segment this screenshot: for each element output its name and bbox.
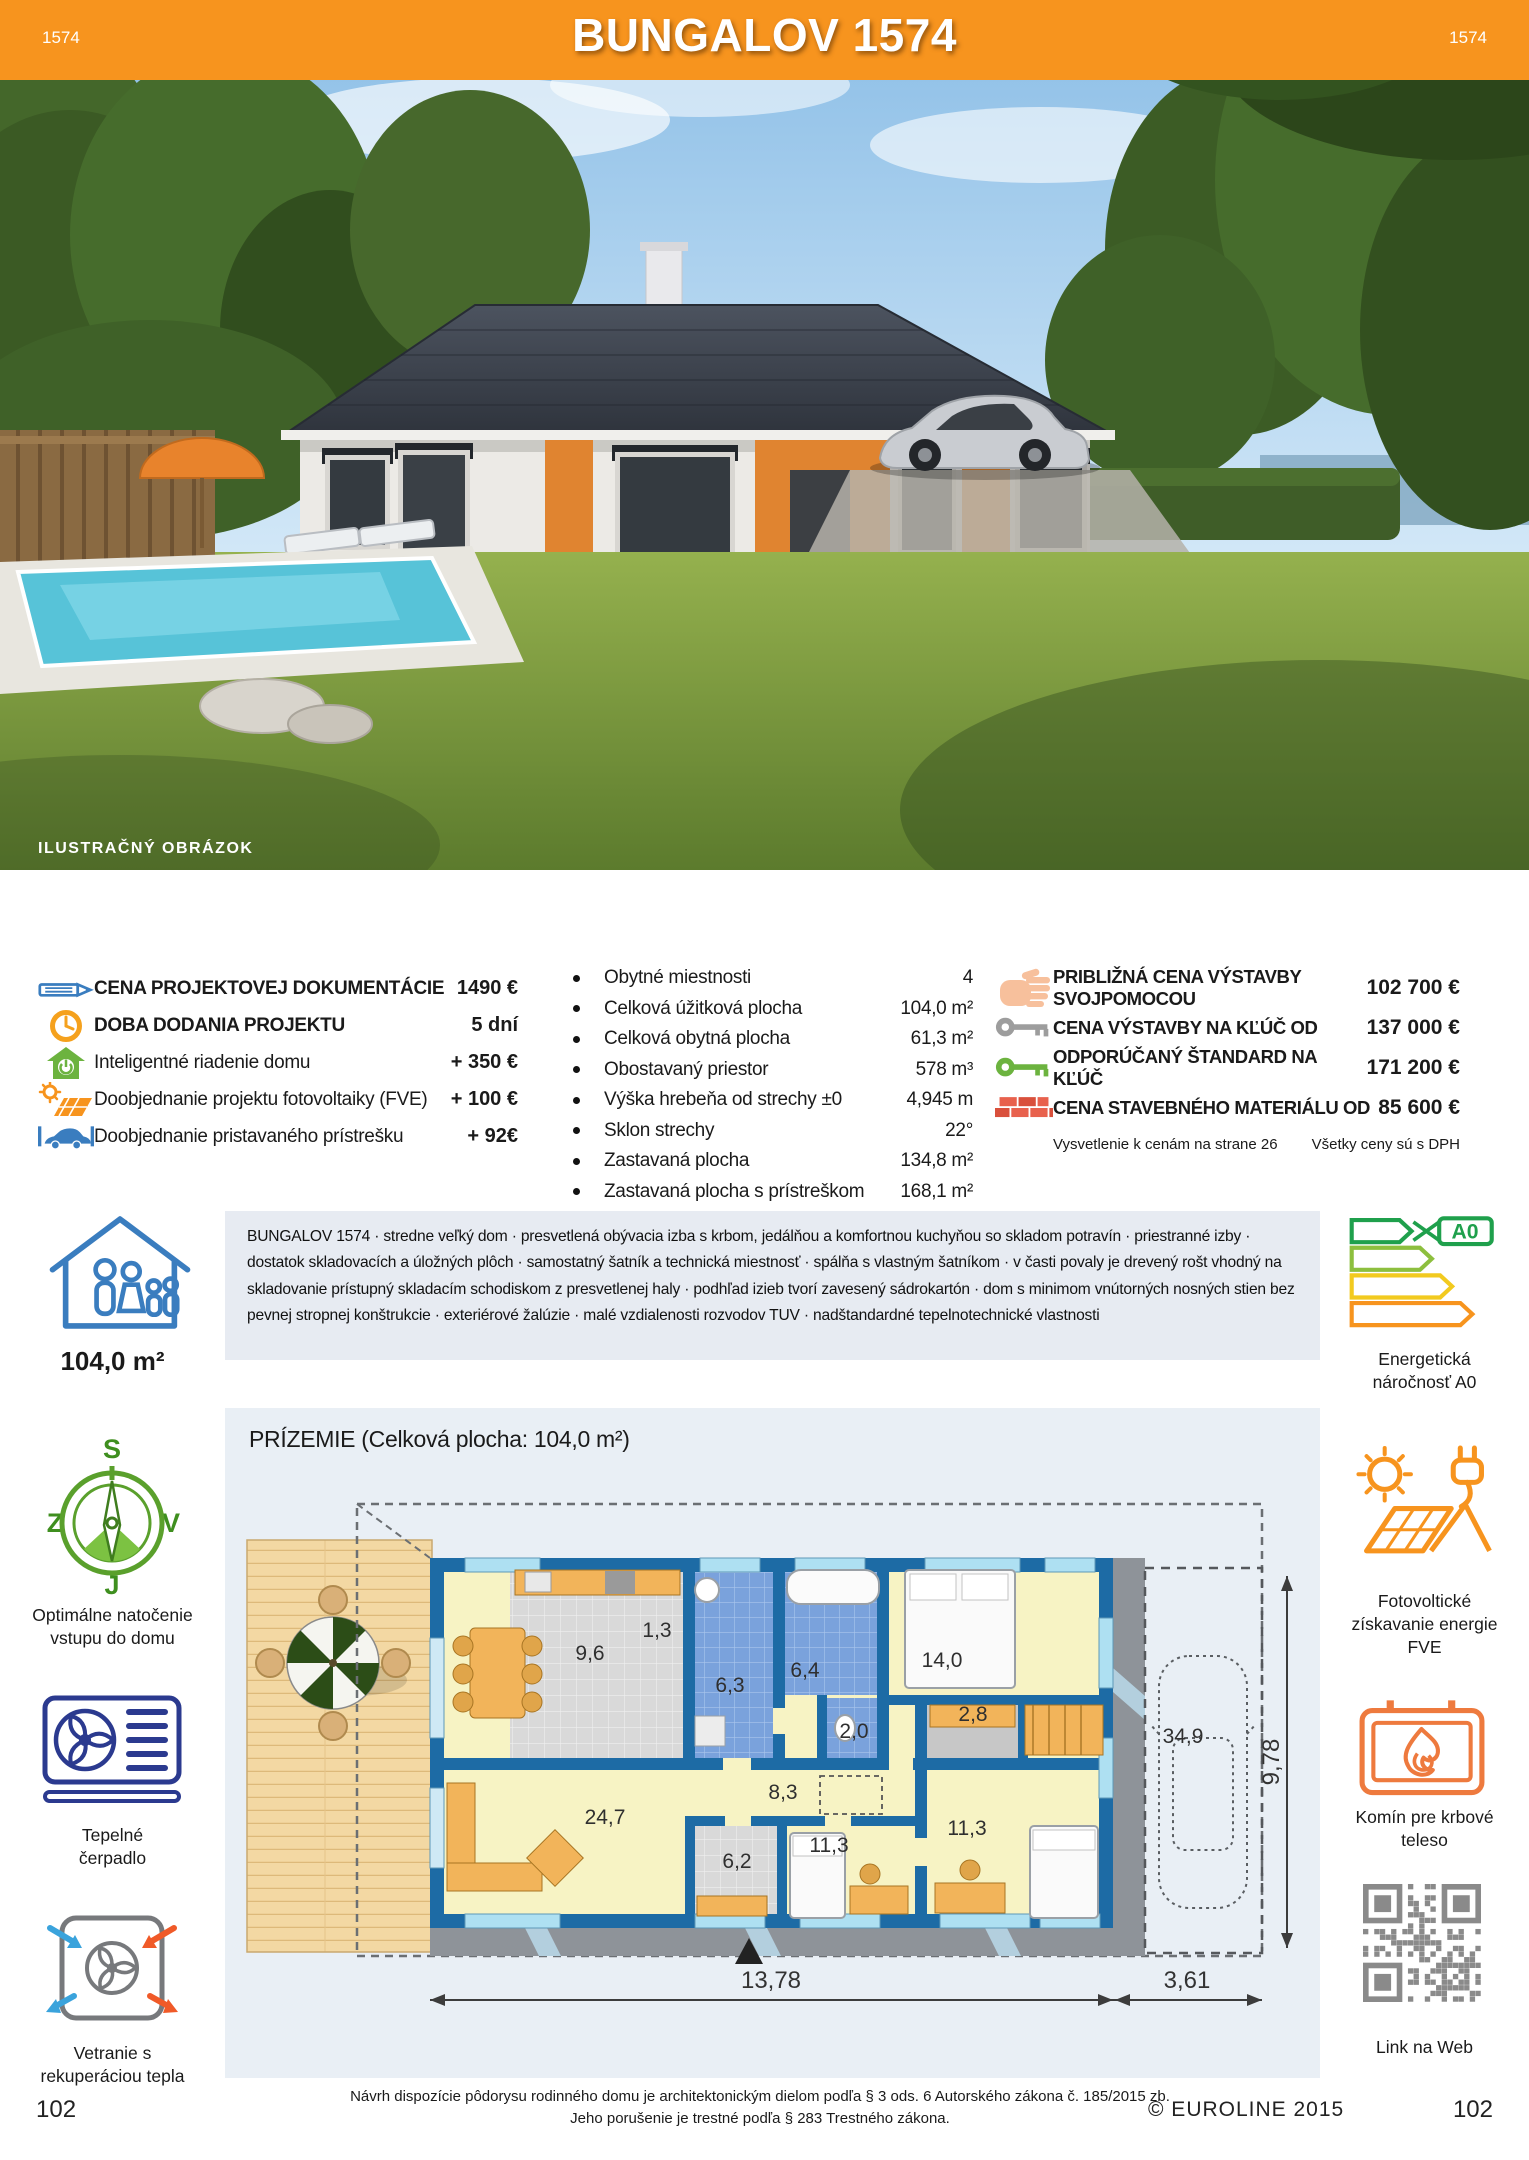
- floorplan-drawing: 9,6 1,3 6,3 6,4 2,0 14,0 2,8 8,3 24,7 6,…: [225, 1408, 1320, 2078]
- price-row-turnkey: CENA VÝSTAVBY NA KĽÚČ OD 137 000 €: [995, 1008, 1460, 1048]
- svg-text:34,9: 34,9: [1163, 1725, 1204, 1748]
- svg-text:24,7: 24,7: [585, 1806, 626, 1829]
- key-green-icon: [995, 1053, 1053, 1083]
- spec-value: 4,945 m: [906, 1089, 973, 1111]
- price-value: 171 200 €: [1367, 1056, 1460, 1080]
- price-row-materials: CENA STAVEBNÉHO MATERIÁLU OD 85 600 €: [995, 1088, 1460, 1128]
- hero-photo: ILUSTRAČNÝ OBRÁZOK EUROLINE: [0, 0, 1529, 870]
- key-gray-icon: [995, 1013, 1053, 1043]
- price-label: CENA VÝSTAVBY NA KĽÚČ OD: [1053, 1017, 1367, 1039]
- price-row-selfbuild: PRIBLIŽNÁ CENA VÝSTAVBY SVOJPOMOCOU 102 …: [995, 968, 1460, 1008]
- smart-home-icon: [38, 1046, 94, 1080]
- title-banner: 1574 BUNGALOV 1574 1574: [0, 0, 1529, 80]
- energy-caption: Energetická náročnosť A0: [1320, 1348, 1529, 1394]
- note-vat: Všetky ceny sú s DPH: [1312, 1136, 1460, 1153]
- price-row-fve: Doobjednanie projektu fotovoltaiky (FVE)…: [38, 1081, 518, 1118]
- spec-label: Výška hrebeňa od strechy ±0: [604, 1089, 906, 1111]
- bricks-icon: [995, 1094, 1053, 1122]
- photo-caption: ILUSTRAČNÝ OBRÁZOK: [38, 838, 253, 857]
- svg-text:8,3: 8,3: [768, 1781, 797, 1804]
- price-label: CENA STAVEBNÉHO MATERIÁLU OD: [1053, 1097, 1378, 1119]
- spec-row: Obytné miestnosti4: [563, 963, 973, 994]
- price-label: DOBA DODANIA PROJEKTU: [94, 1015, 471, 1037]
- price-label: Inteligentné riadenie domu: [94, 1052, 451, 1074]
- bullet-icon: [573, 1005, 580, 1012]
- energy-label-icon: A0: [1348, 1213, 1500, 1335]
- solar-order-icon: [38, 1082, 94, 1118]
- spec-label: Obostavaný priestor: [604, 1059, 916, 1081]
- photovoltaic-icon: [1352, 1440, 1494, 1566]
- carport-order-icon: [38, 1117, 94, 1157]
- catalog-page: ILUSTRAČNÝ OBRÁZOK EUROLINE 1574 BUNGALO…: [0, 0, 1529, 2160]
- price-value: 102 700 €: [1367, 976, 1460, 1000]
- house-description: BUNGALOV 1574 · stredne veľký dom · pres…: [225, 1211, 1320, 1360]
- house-family-icon: [45, 1210, 195, 1335]
- spec-value: 61,3 m²: [911, 1028, 973, 1050]
- bullet-icon: [573, 1066, 580, 1073]
- price-value: + 350 €: [451, 1051, 518, 1074]
- floorplan-panel: PRÍZEMIE (Celková plocha: 104,0 m²): [225, 1408, 1320, 2078]
- spec-value: 22°: [945, 1120, 973, 1142]
- energy-class-text: A0: [1451, 1221, 1478, 1244]
- footer-line-1: Návrh dispozície pôdorysu rodinného domu…: [260, 2086, 1260, 2108]
- price-row-carport: Doobjednanie pristavaného prístrešku + 9…: [38, 1118, 518, 1155]
- specs-column: Obytné miestnosti4 Celková úžitková ploc…: [563, 963, 973, 1207]
- usable-area-label: 104,0 m²: [0, 1346, 225, 1377]
- clock-icon: [38, 1008, 94, 1044]
- spec-row: Zastavaná plocha s prístreškom168,1 m²: [563, 1177, 973, 1208]
- footer-line-2: Jeho porušenie je trestné podľa § 283 Tr…: [260, 2108, 1260, 2130]
- chimney-cap: [640, 242, 688, 251]
- price-notes: Vysvetlenie k cenám na strane 26 Všetky …: [995, 1136, 1460, 1153]
- price-value: 85 600 €: [1378, 1096, 1460, 1120]
- ventilation-icon: [46, 1908, 178, 2026]
- compass-caption: Optimálne natočenie vstupu do domu: [0, 1604, 225, 1650]
- pricing-left-column: CENA PROJEKTOVEJ DOKUMENTÁCIE 1490 € DOB…: [38, 970, 518, 1155]
- svg-text:13,78: 13,78: [741, 1967, 801, 1994]
- svg-text:14,0: 14,0: [922, 1649, 963, 1672]
- svg-text:9,6: 9,6: [575, 1642, 604, 1665]
- spec-label: Celková úžitková plocha: [604, 998, 900, 1020]
- svg-text:S: S: [103, 1436, 121, 1464]
- spec-row: Celková úžitková plocha104,0 m²: [563, 994, 973, 1025]
- svg-text:2,0: 2,0: [839, 1720, 868, 1743]
- spec-row: Sklon strechy22°: [563, 1116, 973, 1147]
- price-label: ODPORÚČANÝ ŠTANDARD NA KĽÚČ: [1053, 1046, 1367, 1090]
- ventilation-caption: Vetranie s rekuperáciou tepla: [0, 2042, 225, 2088]
- price-row-standard: ODPORÚČANÝ ŠTANDARD NA KĽÚČ 171 200 €: [995, 1048, 1460, 1088]
- spec-value: 168,1 m²: [900, 1181, 973, 1203]
- overhang-right: [1113, 1558, 1145, 1956]
- bullet-icon: [573, 1188, 580, 1195]
- fireplace-caption: Komín pre krbové teleso: [1320, 1806, 1529, 1852]
- heat-pump-caption: Tepelné čerpadlo: [0, 1824, 225, 1870]
- bullet-icon: [573, 1036, 580, 1043]
- spec-row: Zastavaná plocha134,8 m²: [563, 1146, 973, 1177]
- svg-text:6,3: 6,3: [715, 1674, 744, 1697]
- qr-caption: Link na Web: [1320, 2036, 1529, 2059]
- bullet-icon: [573, 1158, 580, 1165]
- price-row-documentation: CENA PROJEKTOVEJ DOKUMENTÁCIE 1490 €: [38, 970, 518, 1007]
- note-explanation: Vysvetlenie k cenám na strane 26: [1053, 1136, 1278, 1153]
- spec-label: Celková obytná plocha: [604, 1028, 911, 1050]
- spec-value: 578 m³: [916, 1059, 973, 1081]
- spec-label: Zastavaná plocha s prístreškom: [604, 1181, 900, 1203]
- copyright-notice: Návrh dispozície pôdorysu rodinného domu…: [260, 2086, 1260, 2130]
- page-number-left: 102: [36, 2096, 76, 2124]
- spec-value: 104,0 m²: [900, 998, 973, 1020]
- spec-label: Sklon strechy: [604, 1120, 945, 1142]
- page-title: BUNGALOV 1574: [0, 8, 1529, 62]
- price-row-smart-home: Inteligentné riadenie domu + 350 €: [38, 1044, 518, 1081]
- svg-text:1,3: 1,3: [642, 1619, 671, 1642]
- bullet-icon: [573, 1127, 580, 1134]
- svg-text:V: V: [162, 1508, 180, 1538]
- qr-code-icon[interactable]: [1363, 1884, 1481, 2002]
- spec-value: 134,8 m²: [900, 1150, 973, 1172]
- svg-text:2,8: 2,8: [958, 1703, 987, 1726]
- pricing-right-column: PRIBLIŽNÁ CENA VÝSTAVBY SVOJPOMOCOU 102 …: [995, 968, 1460, 1153]
- fireplace-icon: [1358, 1700, 1486, 1798]
- page-number-right: 102: [1453, 2096, 1493, 2124]
- spec-row: Výška hrebeňa od strechy ±04,945 m: [563, 1085, 973, 1116]
- spec-row: Obostavaný priestor578 m³: [563, 1055, 973, 1086]
- carport-outline: [1145, 1568, 1262, 1953]
- bullet-icon: [573, 1097, 580, 1104]
- svg-text:11,3: 11,3: [947, 1817, 986, 1840]
- compass-icon: S Z V J: [45, 1436, 180, 1596]
- price-value: + 92€: [467, 1125, 518, 1148]
- carport-car: [1150, 1656, 1256, 1908]
- svg-text:3,61: 3,61: [1164, 1967, 1211, 1994]
- spec-value: 4: [963, 967, 973, 989]
- price-label: Doobjednanie pristavaného prístrešku: [94, 1126, 467, 1148]
- pencil-icon: [38, 975, 94, 1003]
- banner-code-right: 1574: [1449, 28, 1487, 48]
- svg-text:11,3: 11,3: [809, 1834, 848, 1857]
- price-value: + 100 €: [451, 1088, 518, 1111]
- price-value: 5 dní: [471, 1014, 518, 1037]
- spec-label: Obytné miestnosti: [604, 967, 963, 989]
- price-label: Doobjednanie projektu fotovoltaiky (FVE): [94, 1089, 451, 1111]
- svg-text:6,4: 6,4: [790, 1659, 820, 1682]
- price-value: 1490 €: [457, 977, 518, 1000]
- photovoltaic-caption: Fotovoltické získavanie energie FVE: [1320, 1590, 1529, 1659]
- svg-text:6,2: 6,2: [722, 1850, 751, 1873]
- price-row-delivery: DOBA DODANIA PROJEKTU 5 dní: [38, 1007, 518, 1044]
- svg-text:9,78: 9,78: [1258, 1739, 1285, 1786]
- heat-pump-icon: [37, 1692, 187, 1804]
- spec-label: Zastavaná plocha: [604, 1150, 900, 1172]
- price-value: 137 000 €: [1367, 1016, 1460, 1040]
- hand-icon: [995, 964, 1053, 1012]
- bullet-icon: [573, 975, 580, 982]
- floorplan-title: PRÍZEMIE (Celková plocha: 104,0 m²): [249, 1426, 630, 1453]
- copyright-label: © EUROLINE 2015: [1148, 2098, 1344, 2122]
- price-label: CENA PROJEKTOVEJ DOKUMENTÁCIE: [94, 978, 457, 1000]
- driveway: [805, 470, 1195, 560]
- spec-row: Celková obytná plocha61,3 m²: [563, 1024, 973, 1055]
- price-label: PRIBLIŽNÁ CENA VÝSTAVBY SVOJPOMOCOU: [1053, 966, 1367, 1010]
